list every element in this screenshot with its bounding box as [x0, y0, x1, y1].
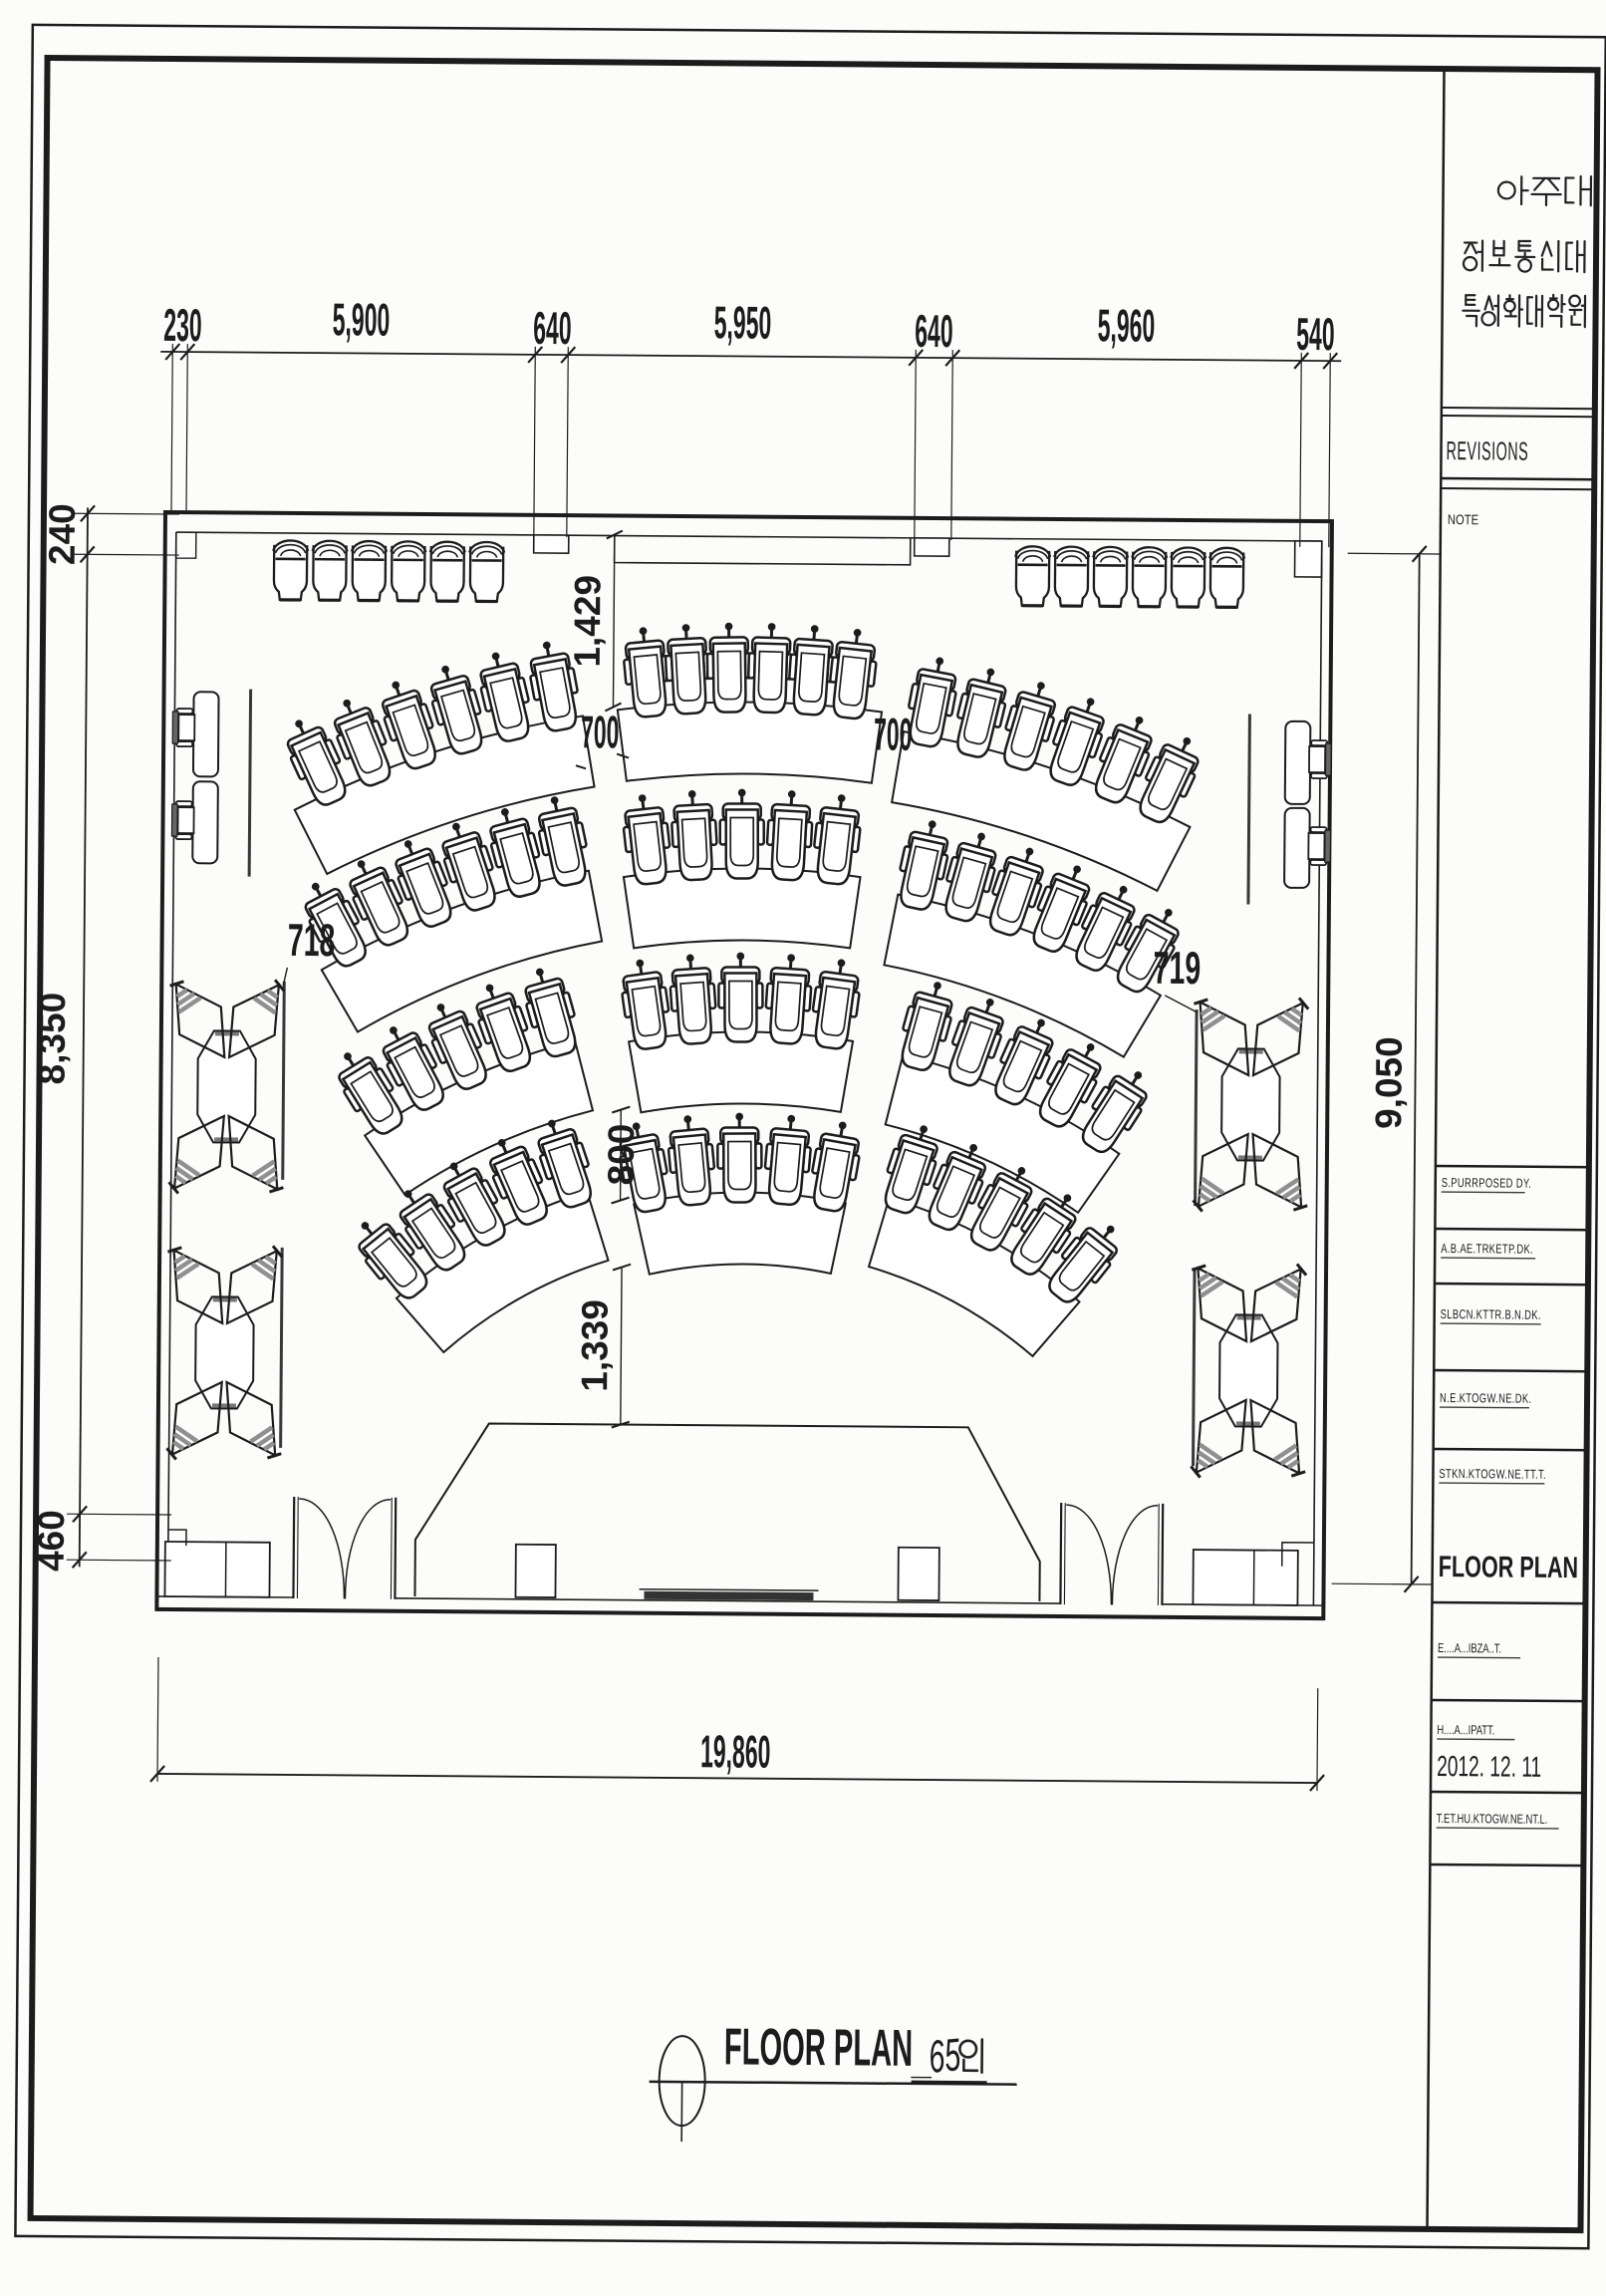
- svg-text:1,429: 1,429: [567, 575, 609, 668]
- svg-text:NOTE: NOTE: [1448, 511, 1478, 527]
- svg-text:1,339: 1,339: [574, 1299, 616, 1392]
- svg-text:STKN.KTOGW.NE.TT.T.: STKN.KTOGW.NE.TT.T.: [1439, 1466, 1546, 1482]
- svg-text:H....A...IPATT.: H....A...IPATT.: [1437, 1722, 1494, 1737]
- svg-text:800: 800: [601, 1124, 642, 1186]
- svg-text:5,960: 5,960: [1098, 299, 1156, 351]
- svg-text:640: 640: [533, 302, 572, 354]
- svg-text:REVISIONS: REVISIONS: [1446, 435, 1528, 466]
- svg-text:718: 718: [288, 914, 336, 966]
- svg-text:700: 700: [581, 706, 620, 757]
- svg-text:E....A...IBZA..T.: E....A...IBZA..T.: [1438, 1640, 1501, 1656]
- svg-text:640: 640: [915, 305, 953, 357]
- svg-text:19,860: 19,860: [700, 1725, 771, 1778]
- svg-text:9,050: 9,050: [1368, 1036, 1410, 1129]
- svg-text:540: 540: [1296, 308, 1335, 360]
- svg-text:SLBCN.KTTR.B.N.DK.: SLBCN.KTTR.B.N.DK.: [1441, 1306, 1541, 1322]
- svg-text:FLOOR PLAN: FLOOR PLAN: [1439, 1551, 1579, 1584]
- svg-text:T.ET.HU.KTOGW.NE.NT.L.: T.ET.HU.KTOGW.NE.NT.L.: [1437, 1811, 1548, 1827]
- svg-text:5,950: 5,950: [714, 296, 772, 348]
- svg-text:240: 240: [42, 503, 83, 565]
- svg-text:S.PURRPOSED DY.: S.PURRPOSED DY.: [1442, 1175, 1532, 1191]
- svg-text:N.E.KTOGW.NE.DK.: N.E.KTOGW.NE.DK.: [1440, 1390, 1532, 1406]
- svg-text:8,350: 8,350: [31, 993, 73, 1085]
- svg-text:5,900: 5,900: [333, 293, 391, 345]
- svg-text:700: 700: [874, 709, 913, 760]
- svg-text:230: 230: [163, 299, 202, 351]
- svg-text:460: 460: [31, 1510, 72, 1572]
- svg-text:719: 719: [1153, 942, 1201, 994]
- svg-text:65: 65: [927, 2028, 963, 2083]
- svg-text:2012. 12. 11: 2012. 12. 11: [1437, 1751, 1541, 1784]
- svg-text:A.B.AE.TRKETP.DK.: A.B.AE.TRKETP.DK.: [1441, 1241, 1533, 1257]
- svg-text:FLOOR PLAN: FLOOR PLAN: [724, 2018, 914, 2077]
